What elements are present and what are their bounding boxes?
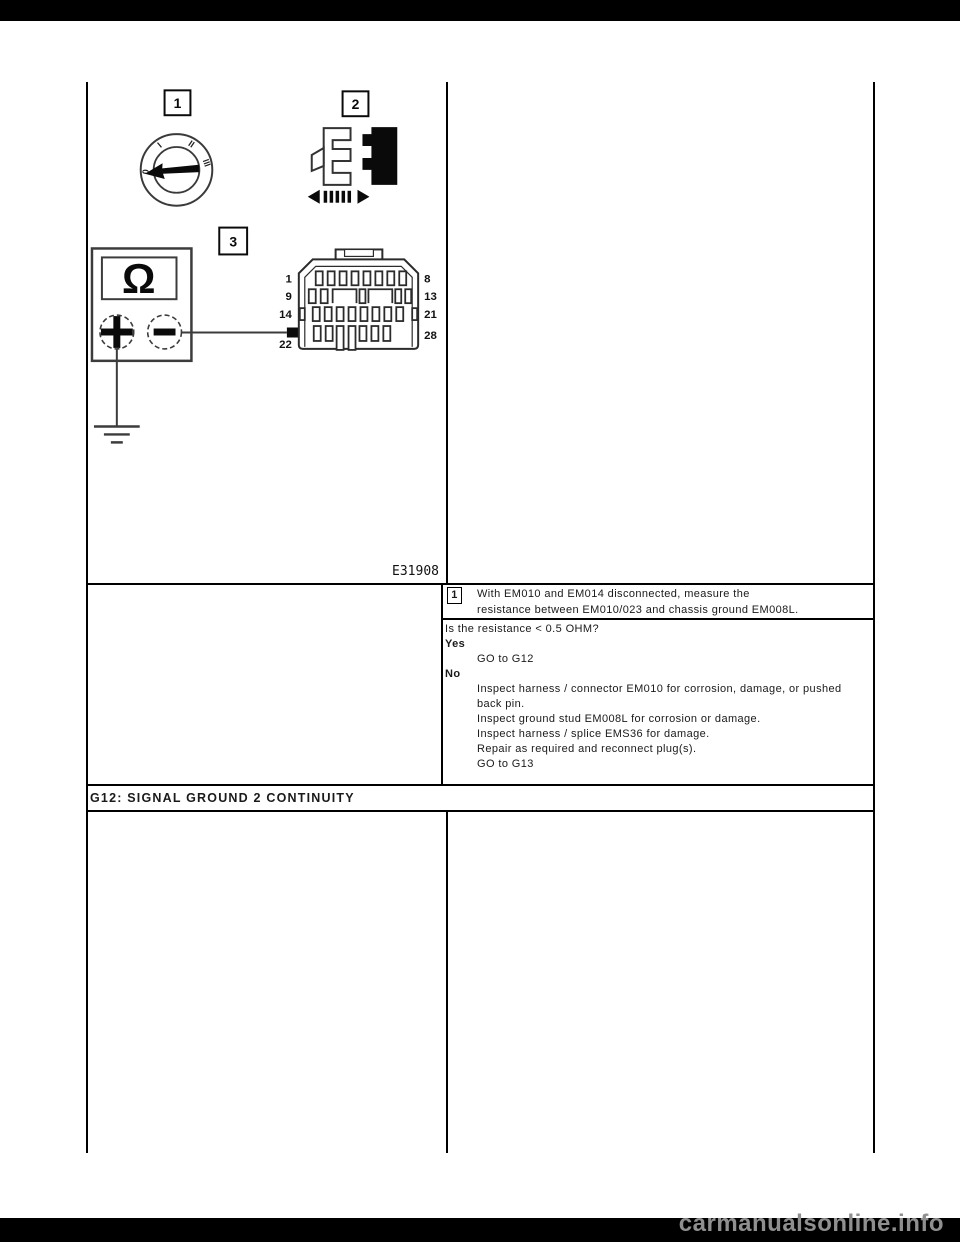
figure-row: 1 0 I II III 2 — [86, 82, 875, 585]
pin-label-9: 9 — [286, 291, 292, 303]
empty-cell-step-left — [86, 585, 443, 784]
empty-cell-top-right — [448, 82, 875, 583]
top-black-bar — [0, 0, 960, 21]
blank-row — [86, 812, 875, 1153]
callout-1: 1 — [174, 95, 182, 111]
yes-label: Yes — [445, 637, 869, 652]
pin-label-21: 21 — [424, 309, 437, 321]
no-action: Repair as required and reconnect plug(s)… — [477, 742, 869, 757]
no-action: Inspect harness / connector EM010 for co… — [477, 682, 869, 712]
step-cell: 1 With EM010 and EM014 disconnected, mea… — [443, 585, 875, 784]
step-instruction-box: 1 With EM010 and EM014 disconnected, mea… — [443, 585, 873, 620]
pin-row-2 — [309, 289, 411, 303]
figure-number: E31908 — [392, 564, 439, 579]
watermark: carmanualsonline.info — [679, 1210, 944, 1238]
disconnect-connector-icon: 2 — [308, 91, 398, 203]
pin-label-22: 22 — [279, 339, 292, 351]
callout-3: 3 — [229, 233, 237, 249]
minus-terminal-icon — [154, 329, 176, 336]
decision-question: Is the resistance < 0.5 OHM? — [445, 622, 869, 637]
pin-label-8: 8 — [424, 273, 430, 285]
pull-apart-arrows-icon — [308, 190, 370, 204]
ground-symbol-icon — [94, 349, 140, 442]
diagnostic-table: 1 0 I II III 2 — [86, 82, 875, 1153]
ohmmeter-icon: 3 Ω — [92, 228, 316, 443]
manual-page: 1 0 I II III 2 — [0, 0, 960, 1242]
callout-2: 2 — [352, 96, 360, 112]
section-header: G12: SIGNAL GROUND 2 CONTINUITY — [86, 784, 875, 812]
connector-pinout — [299, 249, 418, 349]
step-line-1: With EM010 and EM014 disconnected, measu… — [477, 586, 873, 602]
step-instruction-text: With EM010 and EM014 disconnected, measu… — [477, 585, 873, 618]
empty-cell-bottom-left — [86, 812, 448, 1153]
step-row: 1 With EM010 and EM014 disconnected, mea… — [86, 585, 875, 784]
pin-label-1: 1 — [286, 273, 293, 285]
ignition-switch-icon: 1 0 I II III — [140, 90, 212, 205]
step-line-2: resistance between EM010/023 and chassis… — [477, 602, 873, 618]
pin-label-28: 28 — [424, 330, 437, 342]
step-number-badge: 1 — [447, 587, 462, 604]
pin-label-14: 14 — [279, 309, 292, 321]
yes-action: GO to G12 — [477, 652, 869, 667]
decision-box: Is the resistance < 0.5 OHM? Yes GO to G… — [443, 620, 873, 784]
figure-cell: 1 0 I II III 2 — [86, 82, 448, 583]
pin-label-13: 13 — [424, 291, 437, 303]
no-label: No — [445, 667, 869, 682]
probe-wire — [181, 322, 315, 343]
wiring-diagram: 1 0 I II III 2 — [88, 82, 446, 583]
ohm-symbol: Ω — [122, 255, 155, 302]
no-action: Inspect harness / splice EMS36 for damag… — [477, 727, 869, 742]
empty-cell-bottom-right — [448, 812, 875, 1153]
no-action: GO to G13 — [477, 757, 869, 772]
no-action: Inspect ground stud EM008L for corrosion… — [477, 712, 869, 727]
